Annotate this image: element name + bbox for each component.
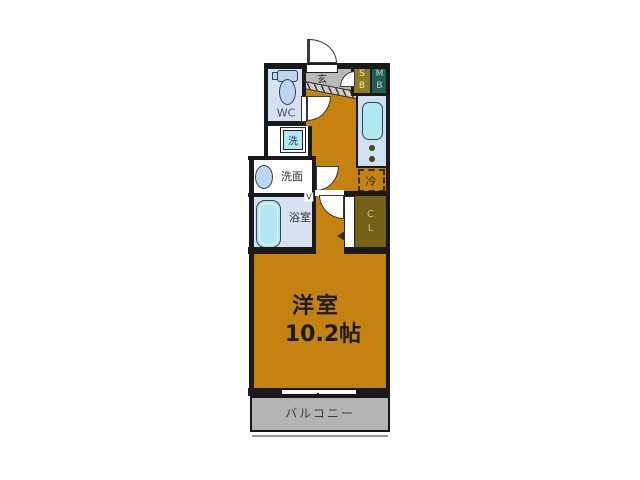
toilet-bowl-icon [279,79,296,105]
kitchen-left-line [356,96,358,167]
washroom-label: 洗面 [281,168,303,184]
wall-right [386,63,390,396]
wall-wc-bottom [264,121,306,126]
burner-icon [369,156,375,162]
wall-left-washer [264,121,268,160]
toilet-handle-icon [272,72,278,80]
closet-label: C L [355,196,386,248]
balcony-outer-line [252,435,388,437]
entrance-door-swing [309,39,337,63]
bathtub-inner-line [259,203,278,245]
bathroom-label: 浴室 [289,209,311,225]
wall-left-upper [264,63,268,126]
entrance-label: 玄 [317,71,327,86]
entrance-door-leaf [307,39,309,63]
balcony-window [281,389,357,395]
bathtub-icon [256,200,281,248]
folding-door [344,196,355,248]
wall-sbmb-divider [370,66,372,94]
washer-label: 洗 [288,133,298,148]
wc-label: WC [277,107,296,120]
meter-box-line1: M [376,68,384,80]
washroom-sink-icon [255,165,273,189]
shoe-box-line2: B [359,80,365,92]
shoe-box-line1: S [359,68,365,80]
meter-box-label: M B [372,66,387,94]
wall-left-lower [249,156,254,396]
burner-icon [369,145,375,151]
main-room-size: 10.2帖 [285,316,361,348]
refrigerator-label: 冷 [366,173,377,189]
floorplan-canvas: S B M B WC 洗 洗面 浴室 冷 C L [0,0,640,480]
kitchen-sink-icon [362,102,383,140]
folding-door-arrow-icon [337,231,345,241]
wall-washroom-top [248,156,312,160]
wall-washroom-bottom [248,193,312,197]
closet-line1: C [367,208,374,222]
balcony-label: バルコニー [285,405,355,422]
kitchen-bottom-line [356,166,386,168]
closet-line2: L [368,222,374,236]
wall-sbmb-bottom [351,93,390,96]
bathroom-door-mark: V [304,193,313,202]
wall-closet-top [344,191,390,196]
shoe-box-label: S B [354,66,370,94]
wall-closet-bottom [344,247,390,254]
meter-box-line2: B [376,80,382,92]
wall-bath-bottom [248,247,316,254]
wall-washer-right [308,126,312,156]
